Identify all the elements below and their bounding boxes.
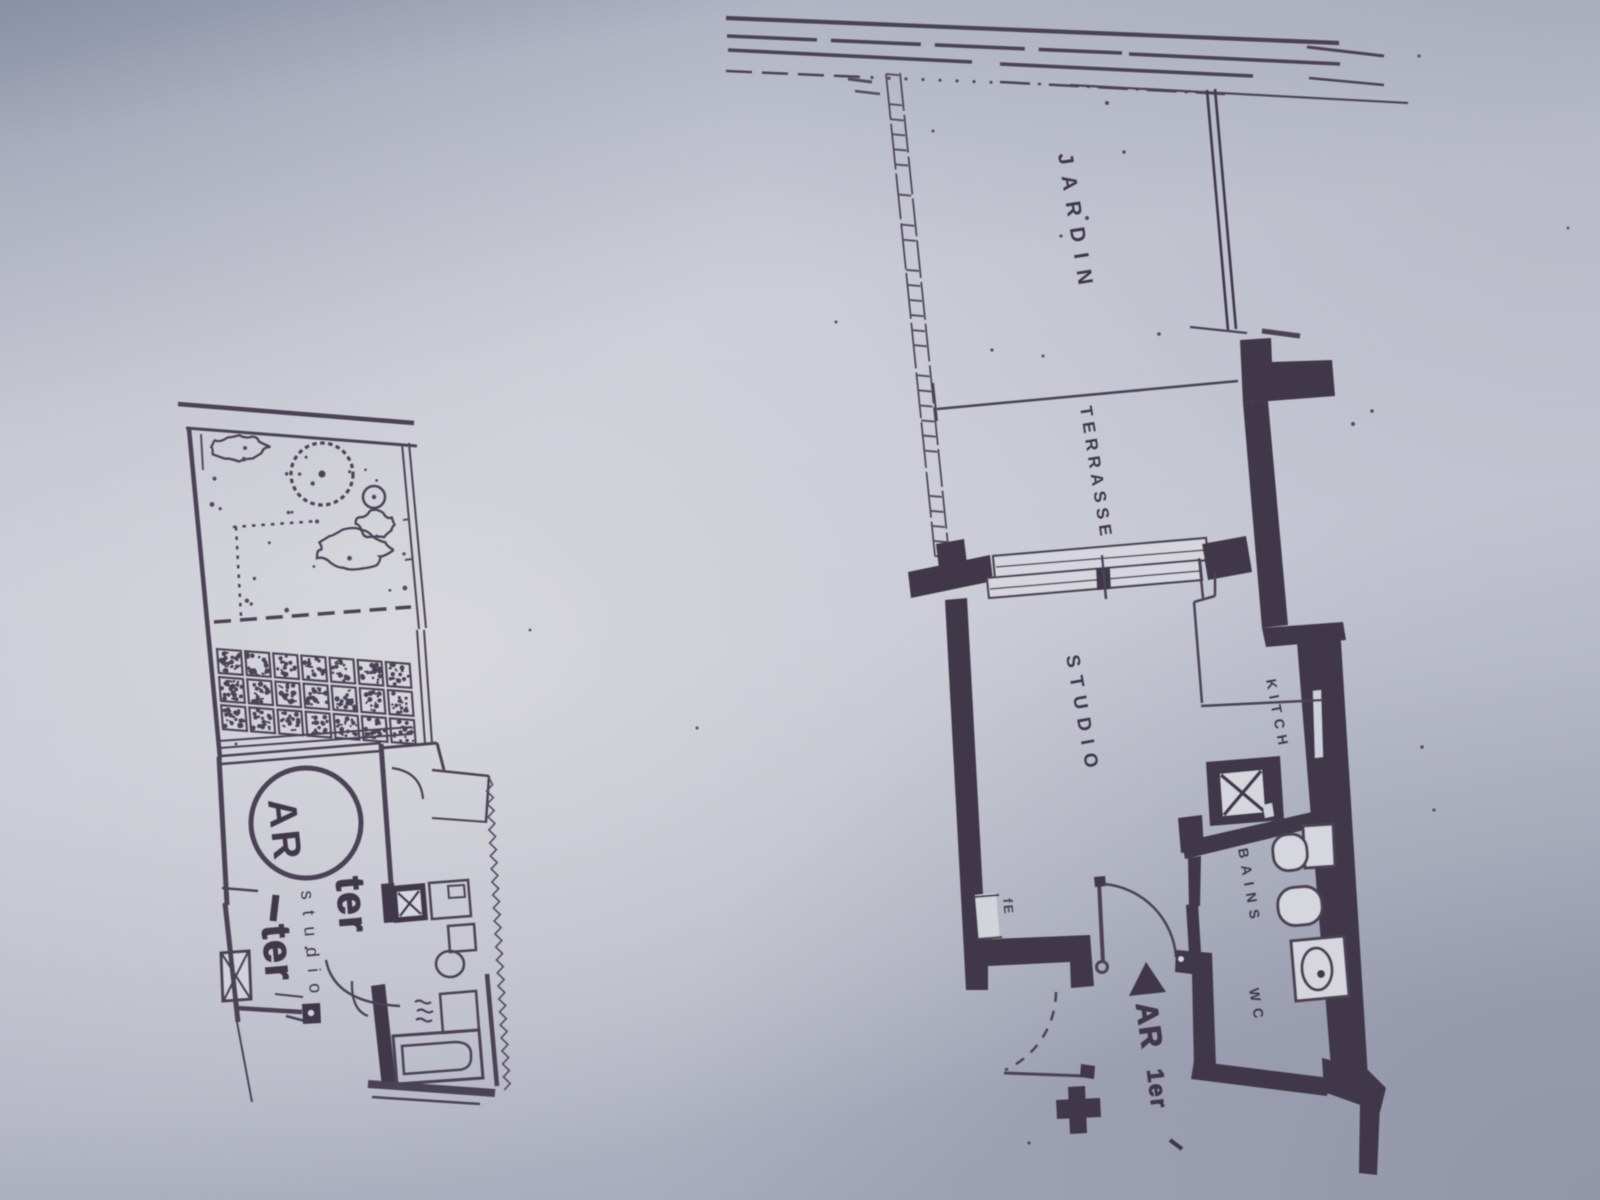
- svg-text:fE: fE: [1000, 898, 1017, 916]
- svg-text:AR: AR: [1129, 1000, 1168, 1051]
- svg-text:AR: AR: [259, 796, 309, 864]
- svg-text:ter: ter: [327, 875, 376, 936]
- svg-text:ter: ter: [253, 923, 302, 984]
- svg-text:1er: 1er: [1142, 1067, 1173, 1110]
